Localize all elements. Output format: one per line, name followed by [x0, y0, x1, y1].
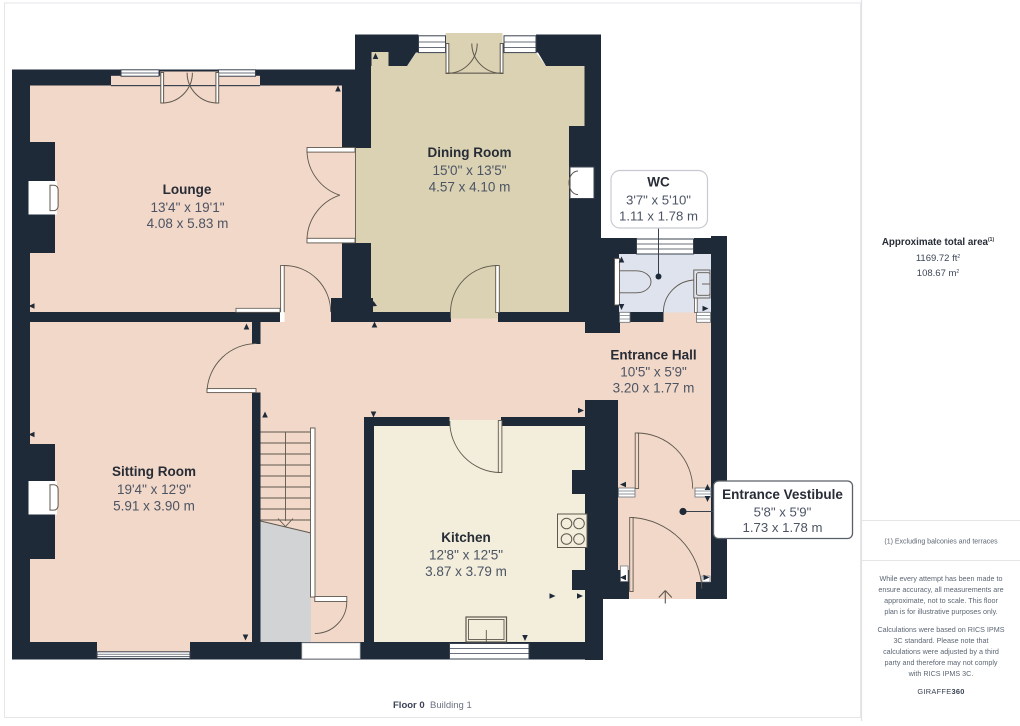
svg-text:party and therefore may not co: party and therefore may not comply: [884, 658, 997, 667]
svg-text:ensure accuracy, all measureme: ensure accuracy, all measurements are: [878, 585, 1003, 594]
svg-text:1.11 x 1.78 m: 1.11 x 1.78 m: [619, 209, 698, 224]
svg-text:3C standard. Please note that: 3C standard. Please note that: [893, 636, 988, 645]
svg-text:calculations were adjusted by: calculations were adjusted by a third: [883, 647, 999, 656]
svg-text:5.91 x 3.90 m: 5.91 x 3.90 m: [113, 499, 195, 514]
svg-text:Building 1: Building 1: [430, 700, 472, 711]
svg-text:12'8" x 12'5": 12'8" x 12'5": [429, 548, 503, 563]
svg-text:108.67 m2: 108.67 m2: [917, 268, 960, 279]
svg-text:Entrance Vestibule: Entrance Vestibule: [722, 487, 843, 502]
svg-text:WC: WC: [647, 175, 670, 190]
svg-text:plan is for illustrative purpo: plan is for illustrative purposes only.: [884, 607, 997, 616]
svg-text:(1) Excluding balconies and te: (1) Excluding balconies and terraces: [884, 539, 998, 546]
svg-text:Sitting Room: Sitting Room: [112, 464, 196, 479]
svg-text:GIRAFFE360: GIRAFFE360: [917, 687, 964, 696]
svg-text:1.73 x 1.78 m: 1.73 x 1.78 m: [743, 520, 823, 535]
svg-text:Calculations were based on RIC: Calculations were based on RICS IPMS: [877, 625, 1004, 634]
svg-text:approximate, not to scale. Thi: approximate, not to scale. This floor: [884, 596, 998, 605]
svg-text:Dining Room: Dining Room: [428, 145, 512, 160]
svg-text:4.08 x 5.83 m: 4.08 x 5.83 m: [147, 216, 229, 231]
svg-text:Lounge: Lounge: [163, 182, 212, 197]
svg-text:Approximate total area(1): Approximate total area(1): [882, 237, 995, 248]
svg-text:Entrance Hall: Entrance Hall: [610, 348, 696, 363]
svg-text:3.20 x 1.77 m: 3.20 x 1.77 m: [613, 381, 695, 396]
svg-text:5'8" x 5'9": 5'8" x 5'9": [754, 505, 812, 520]
svg-text:10'5" x 5'9": 10'5" x 5'9": [620, 365, 687, 380]
svg-text:13'4" x 19'1": 13'4" x 19'1": [150, 200, 224, 215]
svg-text:with RICS IPMS 3C.: with RICS IPMS 3C.: [908, 669, 974, 678]
svg-text:4.57 x 4.10 m: 4.57 x 4.10 m: [429, 180, 511, 195]
svg-text:3'7" x 5'10": 3'7" x 5'10": [626, 193, 691, 208]
svg-text:Kitchen: Kitchen: [441, 530, 491, 545]
svg-text:3.87 x 3.79 m: 3.87 x 3.79 m: [425, 564, 507, 579]
svg-text:19'4" x 12'9": 19'4" x 12'9": [117, 482, 191, 497]
svg-text:Floor 0: Floor 0: [393, 700, 425, 711]
svg-text:15'0" x 13'5": 15'0" x 13'5": [432, 163, 506, 178]
svg-text:1169.72 ft2: 1169.72 ft2: [916, 253, 961, 264]
svg-text:While every attempt has been m: While every attempt has been made to: [879, 574, 1002, 583]
